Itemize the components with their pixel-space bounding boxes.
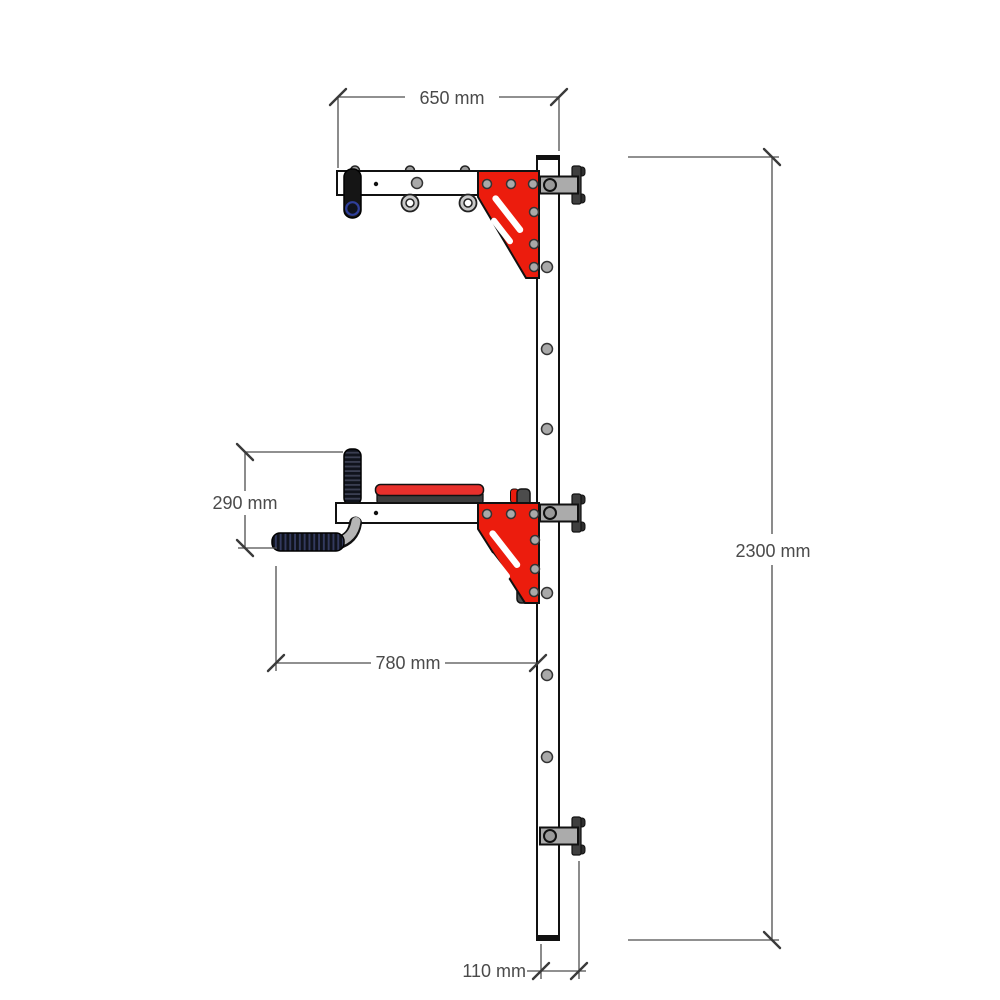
post-hole [542,752,553,763]
gusset-hole [530,240,539,249]
gusset-hole [530,263,539,272]
pad-top [376,485,484,496]
dim-overall-height: 2300 mm [628,149,820,948]
arm-hole [412,178,423,189]
dim-label-top-width: 650 mm [419,88,484,108]
dim-label-overall-height: 2300 mm [735,541,810,561]
dim-label-handle-drop: 290 mm [212,493,277,513]
gusset-hole [529,180,538,189]
gusset-hole [483,510,492,519]
bracket-bolt [544,830,556,842]
bracket-bolt [544,179,556,191]
dim-label-dip-reach: 780 mm [375,653,440,673]
dip-handle-grip [272,533,344,551]
gusset-hole [531,565,540,574]
back-pad [376,485,484,504]
dip-arm-assembly [272,449,540,603]
post-body [537,156,559,940]
mid-gusset-bracket [478,503,540,603]
gusset-hole [531,536,540,545]
pullup-arm-assembly [337,166,539,278]
gusset-hole [530,510,539,519]
gusset-hole [483,180,492,189]
dim-top-width: 650 mm [330,85,567,168]
pullup-bar-grip [344,169,361,218]
gusset-hole [530,588,539,597]
eyelet-rings [402,195,477,212]
post-hole [542,344,553,355]
dim-dip-reach: 780 mm [268,566,546,674]
bracket-bolt [544,507,556,519]
grip-end-ring [346,202,359,215]
dim-label-wall-offset: 110 mm [462,961,526,981]
gusset-hole [530,208,539,217]
post-hole [542,670,553,681]
drawing-canvas: 650 mm 2300 mm 290 mm 780 mm 110 m [0,0,1000,1000]
dim-wall-offset: 110 mm [462,861,587,981]
post-hole [542,262,553,273]
top-gusset-bracket [478,171,539,278]
gusset-hole [507,510,516,519]
vertical-grip [344,449,361,505]
post-hole [542,588,553,599]
arm-pin-hole [374,511,378,515]
technical-drawing: 650 mm 2300 mm 290 mm 780 mm 110 m [0,0,1000,1000]
eyelet-hole [406,199,414,207]
post-bottom-cap [538,935,559,941]
arm-pin-hole [374,182,378,186]
post-hole [542,424,553,435]
eyelet-hole [464,199,472,207]
gusset-hole [507,180,516,189]
